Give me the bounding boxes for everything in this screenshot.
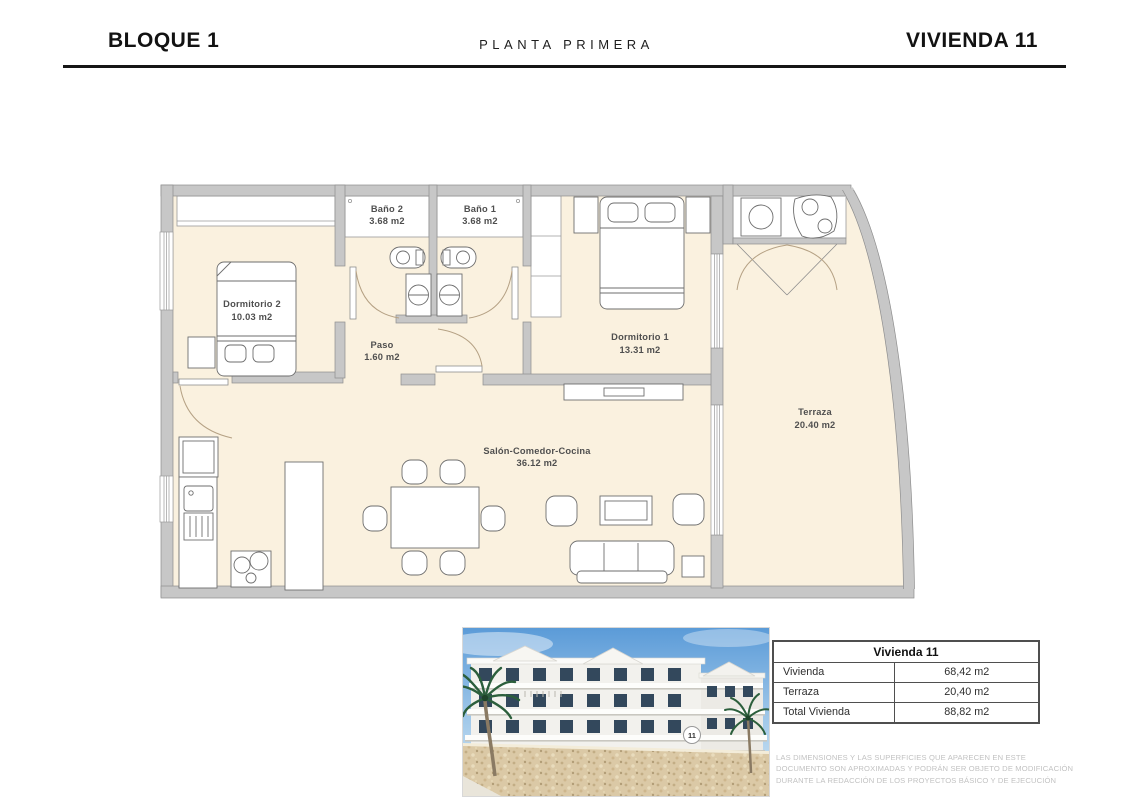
render-stone-wall — [463, 743, 769, 796]
svg-text:Paso: Paso — [370, 340, 393, 350]
table-row: Total Vivienda 88,82 m2 — [774, 703, 1038, 722]
svg-text:1.60 m2: 1.60 m2 — [364, 352, 400, 362]
row-label: Terraza — [774, 683, 895, 702]
row-label: Vivienda — [774, 663, 895, 682]
header-divider — [63, 65, 1066, 68]
row-label: Total Vivienda — [774, 703, 895, 722]
table-row: Vivienda 68,42 m2 — [774, 663, 1038, 683]
row-value: 88,82 m2 — [895, 703, 1038, 722]
summary-table-title: Vivienda 11 — [774, 642, 1038, 663]
building-render: 11 — [462, 627, 770, 797]
svg-text:Dormitorio 2: Dormitorio 2 — [223, 299, 281, 309]
svg-text:Dormitorio 1: Dormitorio 1 — [611, 332, 669, 342]
row-value: 20,40 m2 — [895, 683, 1038, 702]
svg-text:11: 11 — [688, 731, 696, 740]
unit-title: VIVIENDA 11 — [906, 29, 1038, 53]
svg-text:36.12 m2: 36.12 m2 — [517, 458, 558, 468]
svg-text:Salón-Comedor-Cocina: Salón-Comedor-Cocina — [483, 446, 591, 456]
floor-plan: Dormitorio 2 10.03 m2 Baño 2 3.68 m2 Bañ… — [148, 180, 928, 605]
tv-unit — [564, 384, 683, 400]
summary-table: Vivienda 11 Vivienda 68,42 m2 Terraza 20… — [772, 640, 1040, 724]
svg-text:Terraza: Terraza — [798, 407, 832, 417]
svg-text:20.40 m2: 20.40 m2 — [795, 420, 836, 430]
svg-text:Baño 1: Baño 1 — [464, 204, 496, 214]
row-value: 68,42 m2 — [895, 663, 1038, 682]
unit-badge: 11 — [684, 727, 701, 744]
svg-text:13.31 m2: 13.31 m2 — [620, 345, 661, 355]
table-row: Terraza 20,40 m2 — [774, 683, 1038, 703]
svg-text:3.68 m2: 3.68 m2 — [369, 216, 405, 226]
svg-text:10.03 m2: 10.03 m2 — [232, 312, 273, 322]
svg-text:Baño 2: Baño 2 — [371, 204, 403, 214]
legal-disclaimer: LAS DIMENSIONES Y LAS SUPERFICIES QUE AP… — [776, 752, 1076, 786]
svg-text:3.68 m2: 3.68 m2 — [462, 216, 498, 226]
page: { "header": { "block": "BLOQUE 1", "floo… — [0, 0, 1133, 800]
